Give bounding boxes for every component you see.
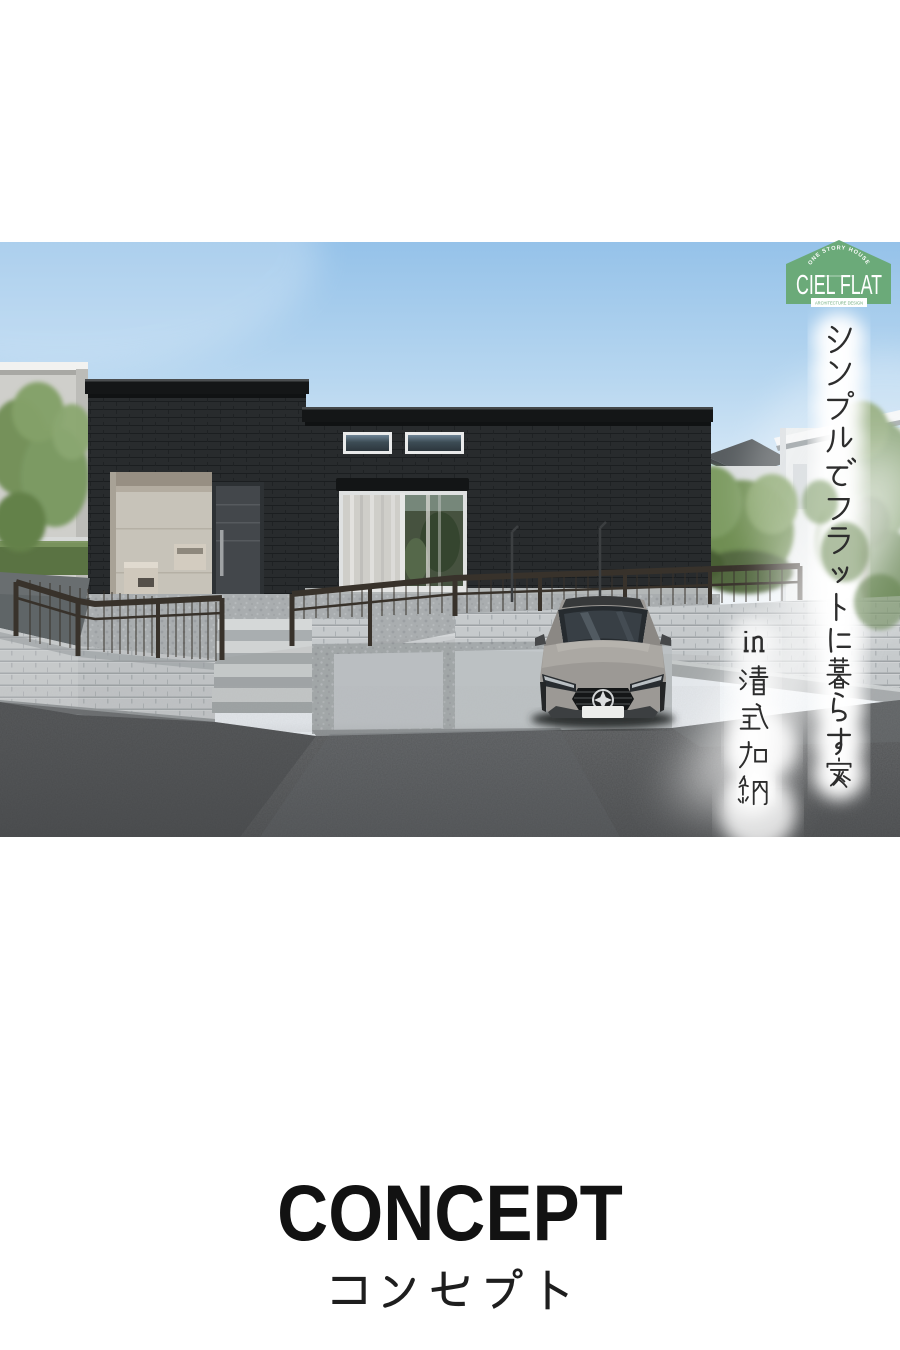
svg-text:CIEL FLAT: CIEL FLAT (796, 269, 882, 300)
svg-text:ARCHITECTURE DESIGN: ARCHITECTURE DESIGN (815, 301, 863, 306)
